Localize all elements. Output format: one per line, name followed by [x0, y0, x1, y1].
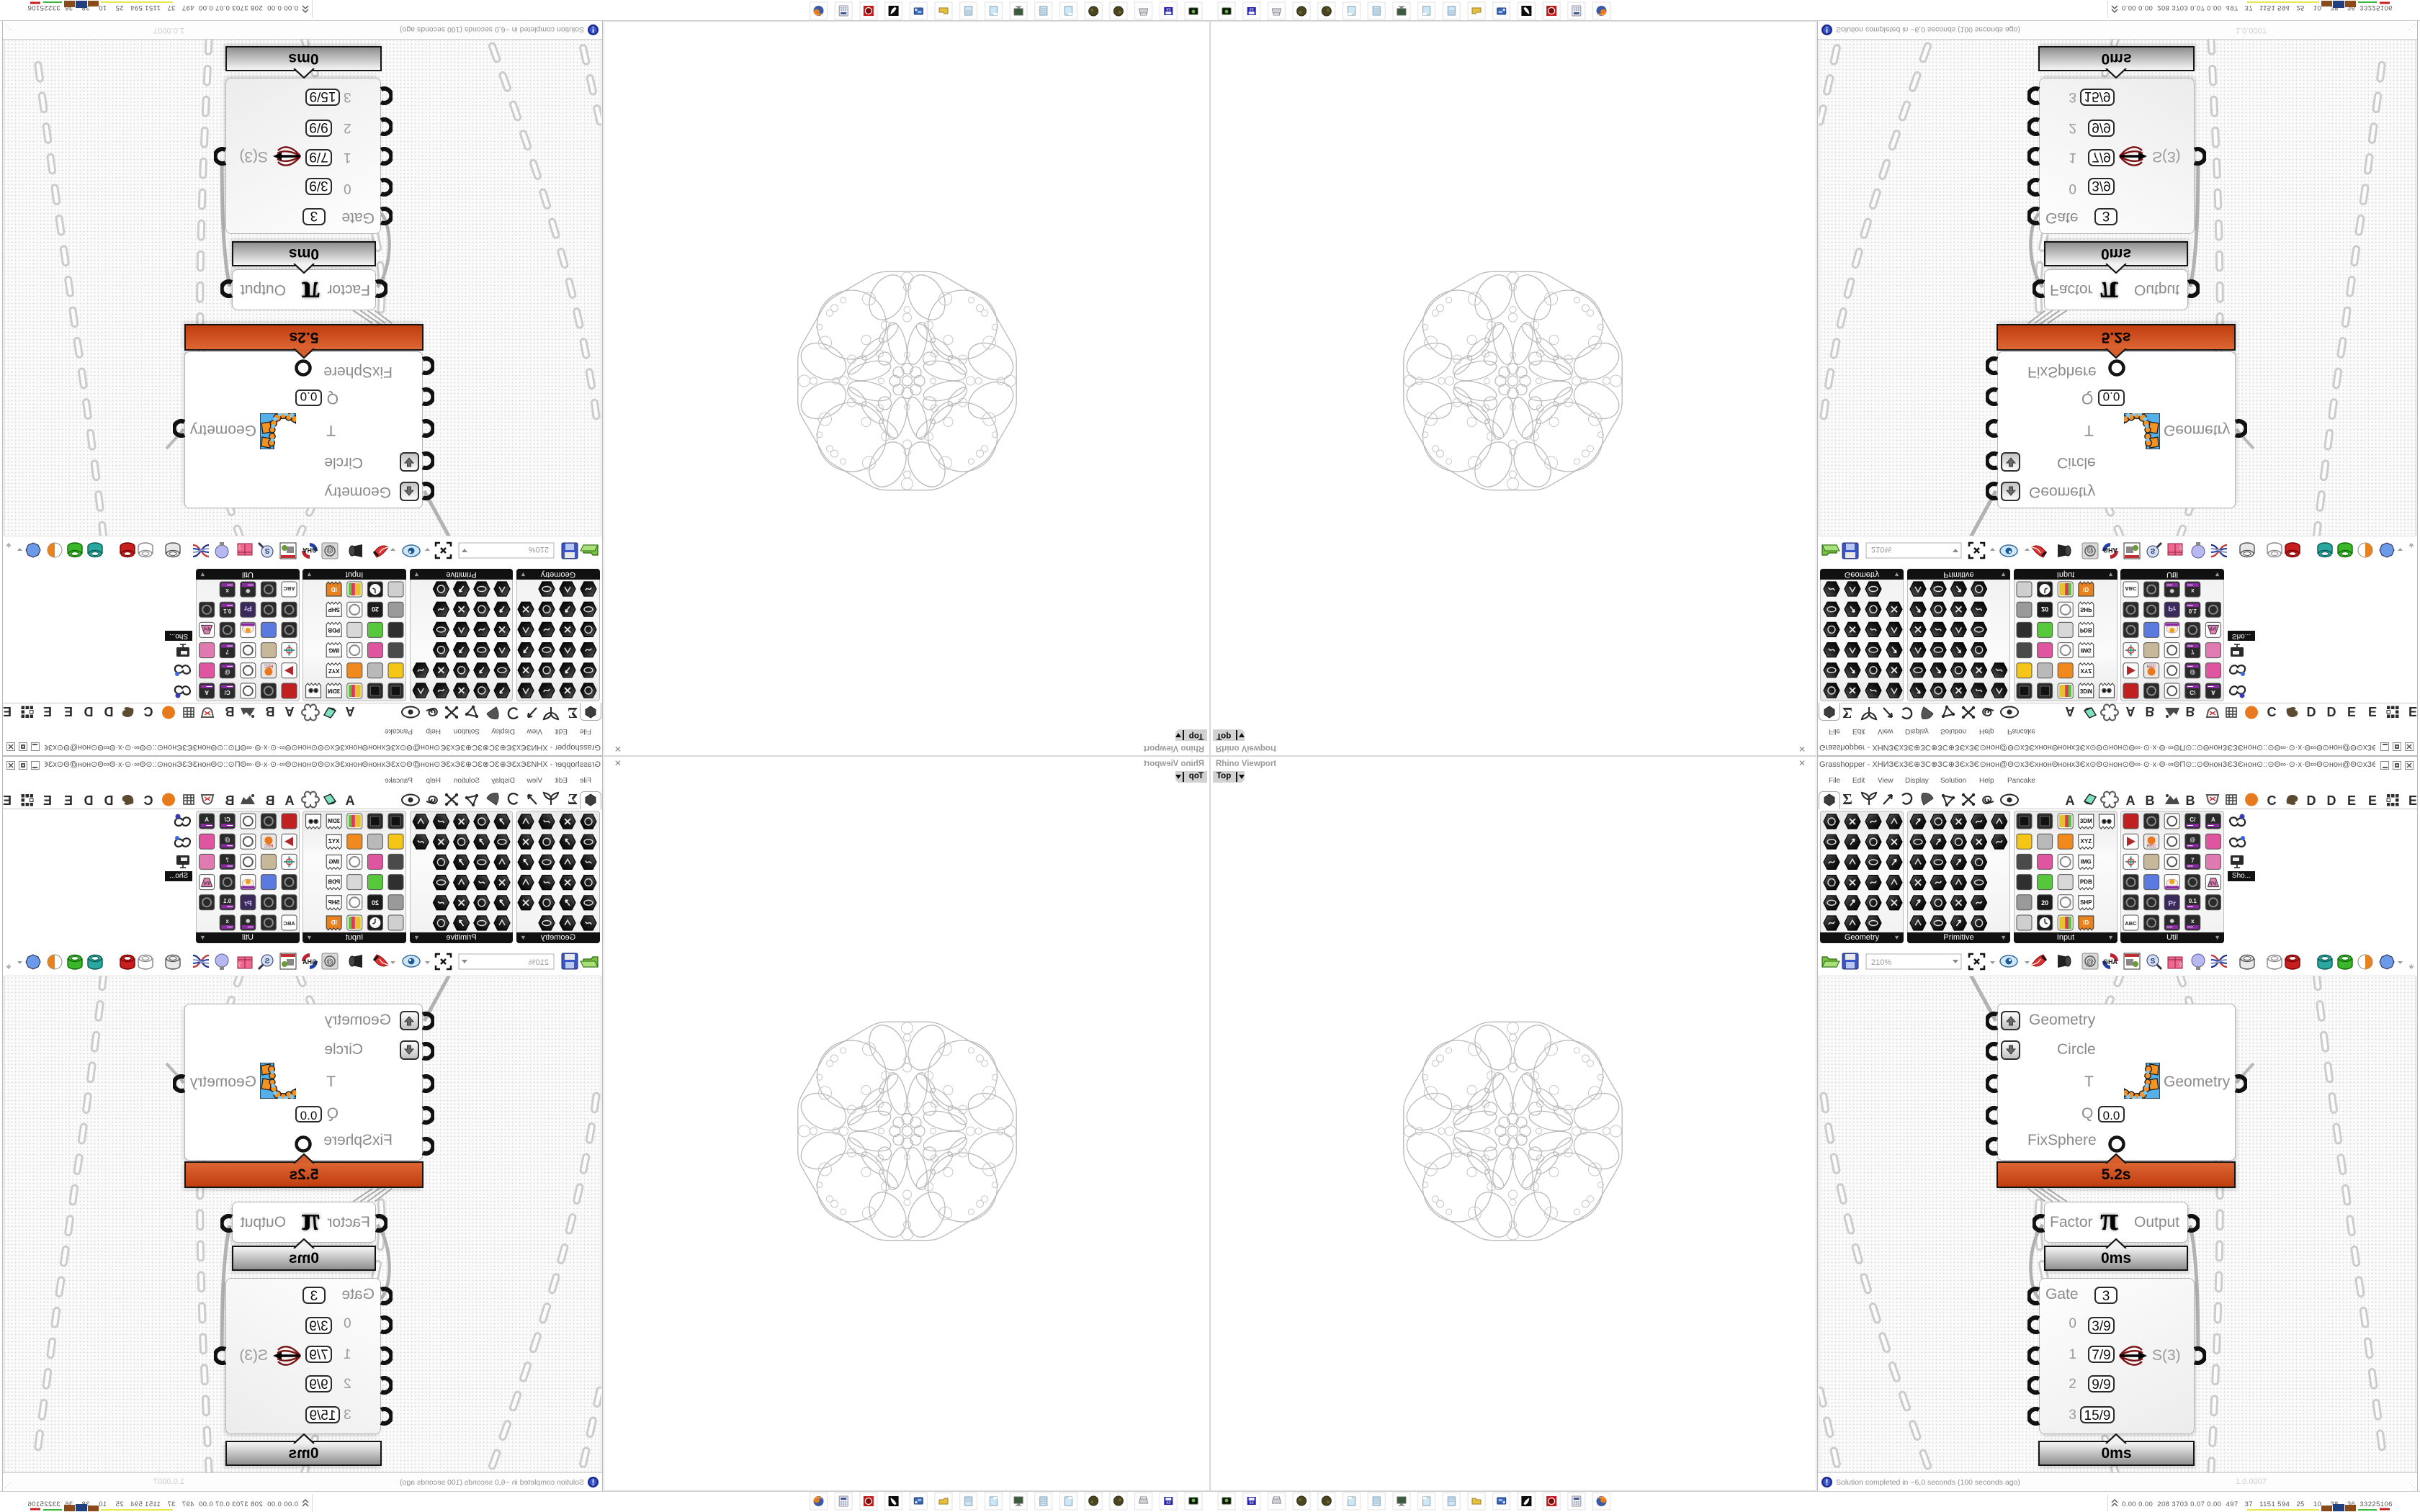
svg-text:E: E [43, 793, 52, 808]
svg-text:210%: 210% [1871, 545, 1891, 554]
svg-text:A: A [2211, 816, 2215, 823]
svg-text:C: C [2267, 704, 2277, 719]
svg-text:E: E [2408, 793, 2417, 808]
svg-text:210%: 210% [529, 958, 549, 967]
svg-text:0.1: 0.1 [223, 608, 232, 614]
svg-text:PDB: PDB [2080, 879, 2092, 886]
svg-text:◉◉: ◉◉ [2102, 688, 2112, 694]
svg-text:REC: REC [264, 663, 273, 667]
svg-text:@: @ [2190, 837, 2195, 843]
svg-text:f(x): f(x) [203, 626, 210, 631]
svg-text:IMG: IMG [328, 647, 339, 654]
svg-text:Pr: Pr [2168, 900, 2176, 908]
svg-text:E: E [2368, 793, 2377, 808]
svg-text:IMG: IMG [328, 858, 339, 865]
svg-text:D: D [84, 704, 94, 719]
svg-text:E: E [43, 704, 52, 719]
svg-text:@: @ [2190, 669, 2195, 675]
svg-text:@: @ [2087, 546, 2094, 554]
svg-text:A: A [346, 793, 355, 808]
svg-text:Pr: Pr [2168, 604, 2176, 612]
svg-text:❉: ❉ [246, 918, 251, 924]
svg-text:@: @ [326, 958, 333, 966]
svg-text:C/: C/ [224, 689, 230, 696]
svg-text:E: E [3, 704, 12, 719]
svg-text:Pr: Pr [244, 900, 252, 908]
svg-text:@: @ [2087, 958, 2094, 966]
svg-text:PDB: PDB [2080, 626, 2092, 633]
svg-text:0.1: 0.1 [2189, 898, 2197, 904]
svg-text:C: C [144, 704, 153, 719]
svg-text:B: B [225, 704, 235, 719]
svg-text:ID: ID [331, 919, 336, 926]
svg-text:D: D [2327, 793, 2336, 808]
svg-text:XYZ: XYZ [2081, 838, 2092, 845]
svg-text:E: E [64, 793, 73, 808]
svg-text:S: S [264, 546, 269, 554]
svg-text:A: A [285, 793, 295, 808]
svg-text:XYZ: XYZ [328, 667, 340, 674]
svg-text:D: D [84, 793, 94, 808]
svg-text:20: 20 [2041, 899, 2048, 906]
svg-text:S: S [2151, 546, 2156, 554]
svg-text:C/: C/ [224, 816, 230, 823]
svg-text:?: ? [2179, 544, 2182, 550]
svg-text:E: E [2347, 704, 2356, 719]
svg-text:GHA: GHA [302, 958, 318, 966]
svg-text:C/: C/ [2190, 689, 2196, 696]
svg-text:x: x [225, 588, 229, 594]
svg-text:ID: ID [2083, 919, 2089, 926]
svg-text:!: ! [1826, 24, 1829, 35]
svg-text:x: x [225, 918, 229, 924]
svg-text:A: A [2211, 689, 2215, 696]
svg-text:D: D [104, 793, 114, 808]
svg-text:3DM: 3DM [2080, 688, 2092, 694]
svg-text:IMG: IMG [2081, 647, 2092, 654]
svg-text:A: A [205, 689, 209, 696]
svg-text:7: 7 [225, 649, 229, 655]
svg-text:64: 64 [1166, 6, 1170, 11]
svg-text:❉: ❉ [2169, 588, 2174, 594]
svg-text:A: A [2066, 704, 2075, 719]
svg-text:E: E [2347, 793, 2356, 808]
svg-text:REC: REC [2147, 663, 2156, 667]
svg-text:GHA: GHA [2103, 958, 2118, 966]
svg-text:D: D [2307, 704, 2316, 719]
svg-text:Σ: Σ [568, 704, 578, 721]
svg-text:Σ: Σ [568, 791, 578, 808]
svg-text:C: C [144, 793, 153, 808]
svg-text:◉◉: ◉◉ [2102, 818, 2112, 824]
svg-text:7: 7 [225, 857, 229, 863]
svg-text:ABC: ABC [2125, 920, 2137, 927]
svg-text:REC: REC [2147, 845, 2156, 849]
svg-text:Σ: Σ [1842, 704, 1852, 721]
svg-text:GHA: GHA [302, 546, 318, 554]
svg-text:B: B [2186, 793, 2195, 808]
svg-text:E: E [64, 704, 73, 719]
svg-text:E: E [2408, 704, 2417, 719]
svg-text:@: @ [326, 546, 333, 554]
svg-text:IMG: IMG [2081, 858, 2092, 865]
svg-text:?: ? [238, 962, 241, 968]
svg-text:A: A [205, 816, 209, 823]
svg-text:❉: ❉ [2169, 918, 2174, 924]
svg-text:A: A [2126, 704, 2136, 719]
svg-text:S: S [2151, 958, 2156, 966]
svg-text:210%: 210% [1871, 958, 1891, 967]
svg-text:!: ! [592, 1477, 595, 1488]
svg-text:SHP: SHP [328, 899, 340, 906]
svg-text:SHP: SHP [328, 606, 340, 613]
svg-text:D: D [2307, 793, 2316, 808]
svg-text:x: x [2191, 918, 2195, 924]
svg-text:0.1: 0.1 [2189, 608, 2197, 614]
svg-text:f(x): f(x) [203, 881, 210, 886]
svg-text:20: 20 [372, 899, 379, 906]
svg-text:x: x [2191, 588, 2195, 594]
svg-text:B: B [266, 793, 275, 808]
svg-text:B: B [2146, 704, 2155, 719]
svg-text:SHP: SHP [2080, 606, 2092, 613]
svg-text:0.1: 0.1 [223, 898, 232, 904]
svg-text:C: C [2267, 793, 2277, 808]
svg-text:S: S [264, 958, 269, 966]
svg-text:A: A [346, 704, 355, 719]
svg-text:7: 7 [2191, 649, 2195, 655]
svg-text:!: ! [1826, 1477, 1829, 1488]
svg-text:REC: REC [264, 845, 273, 849]
svg-text:20: 20 [372, 606, 379, 613]
svg-text:3DM: 3DM [2080, 818, 2092, 824]
svg-text:GHA: GHA [2103, 546, 2118, 554]
svg-text:B: B [266, 704, 275, 719]
svg-text:B: B [2186, 704, 2195, 719]
svg-text:ID: ID [331, 586, 336, 593]
svg-text:XYZ: XYZ [328, 838, 340, 845]
svg-text:64: 64 [1250, 6, 1254, 11]
svg-text:C/: C/ [2190, 816, 2196, 823]
svg-text:D: D [2327, 704, 2336, 719]
svg-text:ID: ID [2083, 586, 2089, 593]
svg-text:@: @ [225, 837, 230, 843]
svg-text:◉◉: ◉◉ [308, 688, 318, 694]
svg-text:A: A [2126, 793, 2136, 808]
svg-text:7: 7 [2191, 857, 2195, 863]
svg-text:ABC: ABC [283, 920, 295, 927]
svg-text:?: ? [2179, 962, 2182, 968]
svg-text:SHP: SHP [2080, 899, 2092, 906]
svg-text:3DM: 3DM [328, 688, 340, 694]
svg-text:XYZ: XYZ [2081, 667, 2092, 674]
svg-text:210%: 210% [529, 545, 549, 554]
svg-text:A: A [2066, 793, 2075, 808]
svg-text:Pr: Pr [244, 604, 252, 612]
svg-text:Σ: Σ [1842, 791, 1852, 808]
svg-text:f(x): f(x) [2210, 626, 2216, 631]
svg-text:20: 20 [2041, 606, 2048, 613]
svg-text:PDB: PDB [328, 879, 340, 886]
svg-text:!: ! [592, 24, 595, 35]
svg-text:64: 64 [1250, 1501, 1254, 1506]
svg-text:64: 64 [1166, 1501, 1170, 1506]
svg-text:B: B [225, 793, 235, 808]
svg-text:B: B [2146, 793, 2155, 808]
svg-text:E: E [3, 793, 12, 808]
svg-text:ABC: ABC [283, 585, 295, 592]
svg-text:@: @ [225, 669, 230, 675]
svg-text:?: ? [238, 544, 241, 550]
svg-text:3DM: 3DM [328, 818, 340, 824]
svg-text:E: E [2368, 704, 2377, 719]
svg-text:D: D [104, 704, 114, 719]
svg-text:A: A [285, 704, 295, 719]
svg-text:f(x): f(x) [2210, 881, 2216, 886]
svg-text:◉◉: ◉◉ [308, 818, 318, 824]
svg-text:ABC: ABC [2125, 585, 2137, 592]
svg-text:PDB: PDB [328, 626, 340, 633]
svg-text:❉: ❉ [246, 588, 251, 594]
